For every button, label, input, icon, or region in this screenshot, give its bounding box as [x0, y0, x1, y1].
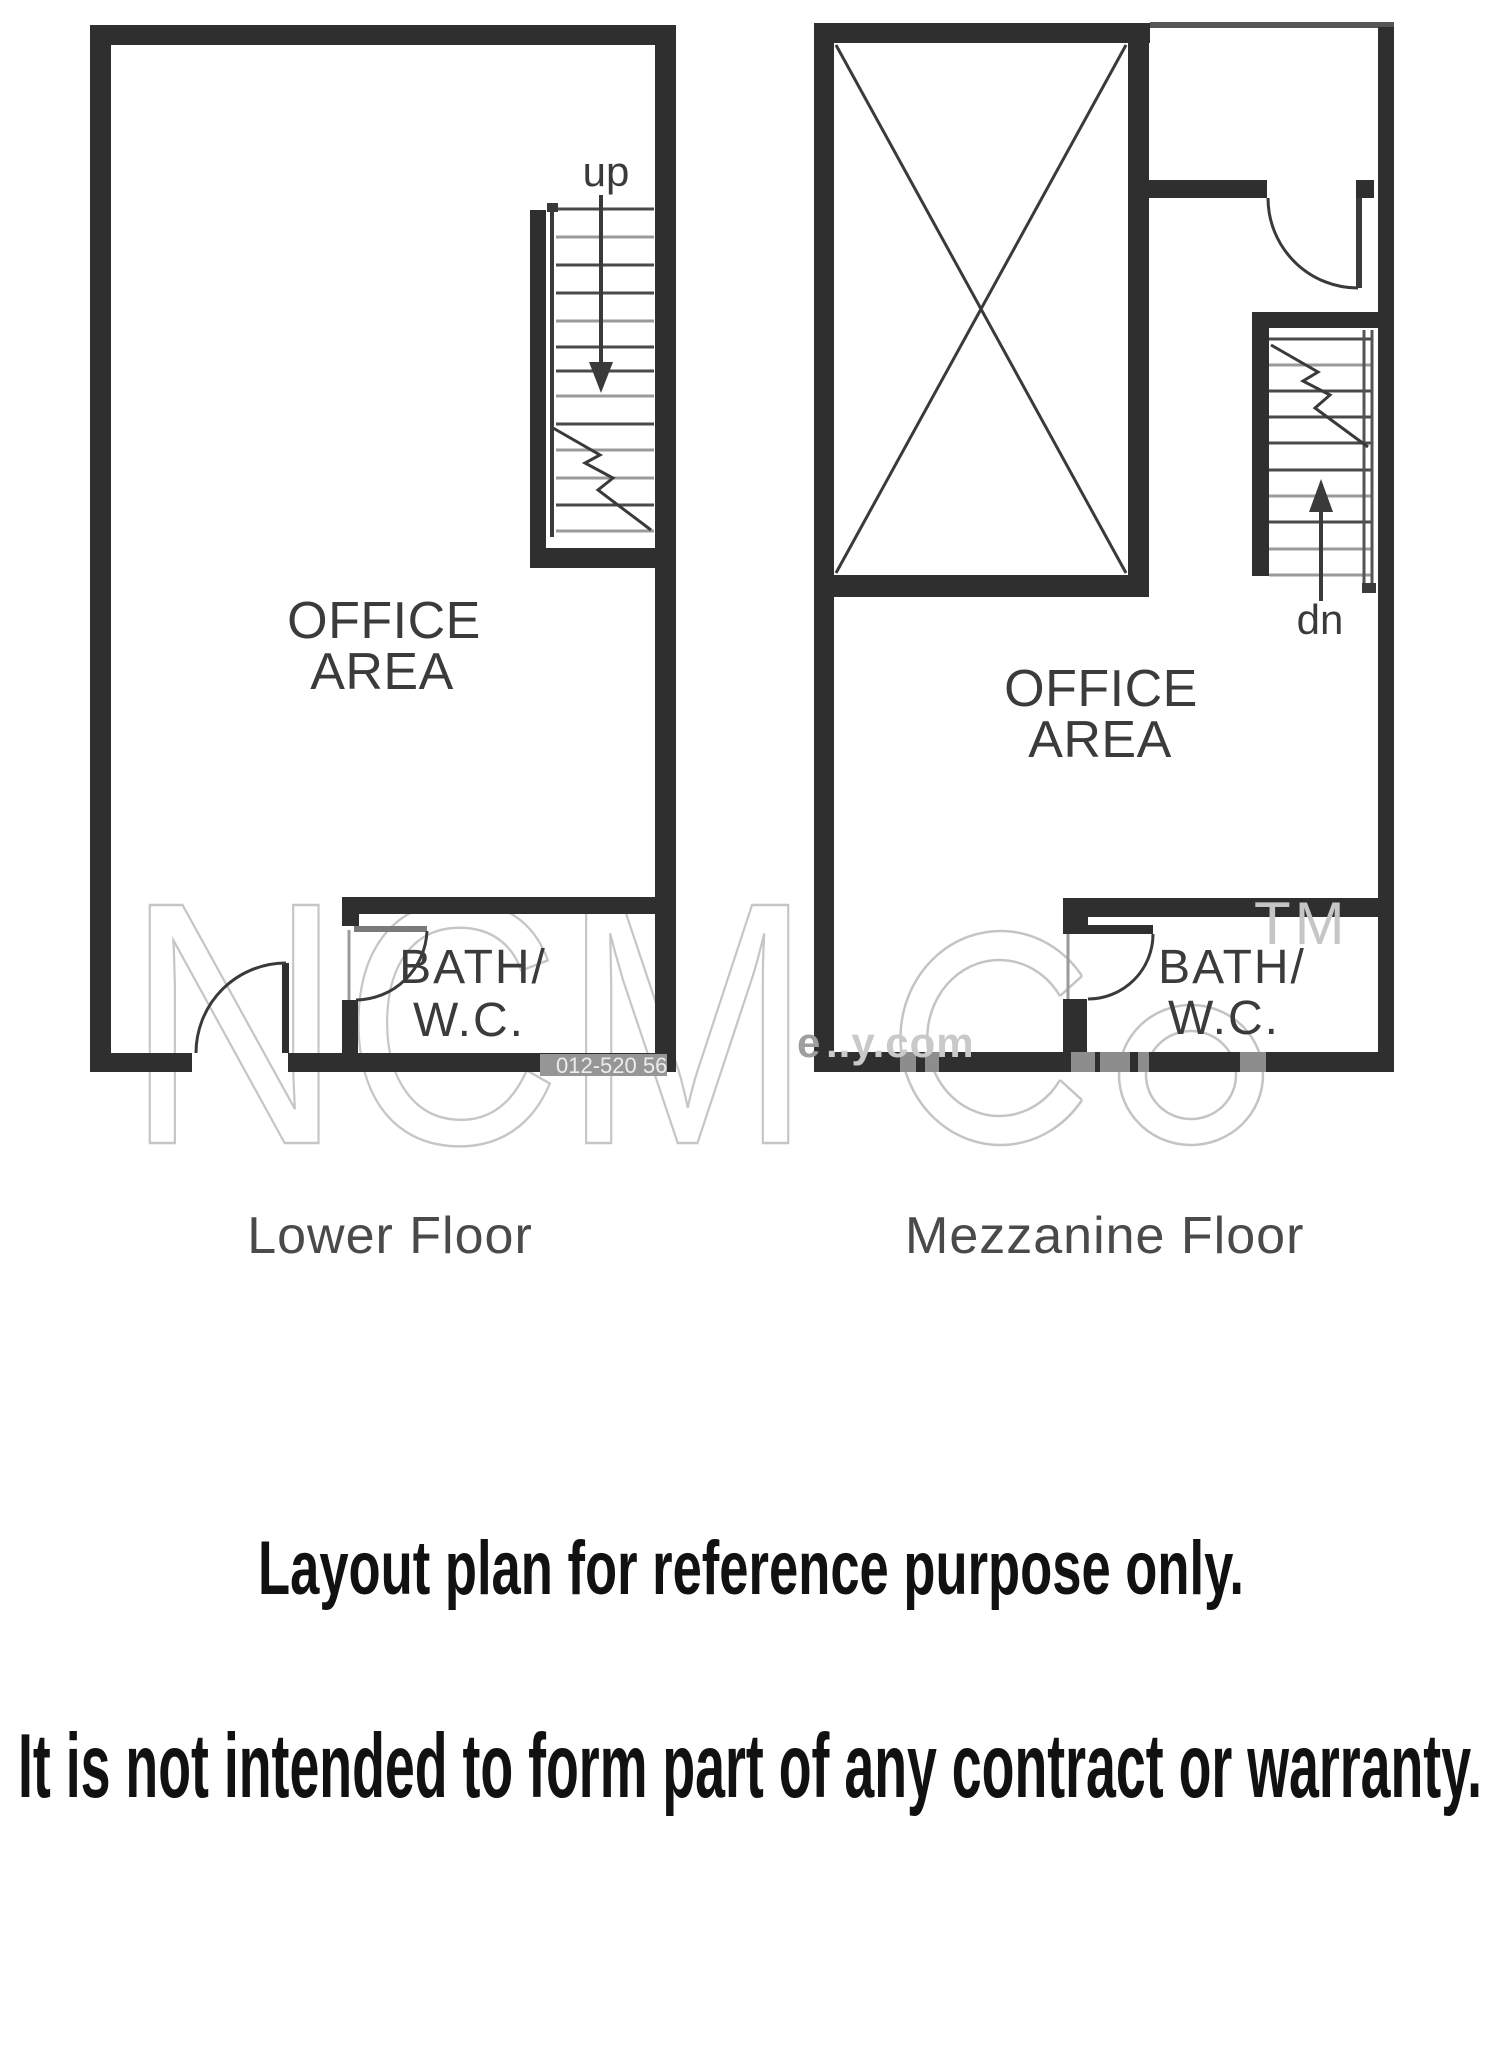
svg-text:Layout plan for reference purp: Layout plan for reference purpose only.	[258, 1526, 1244, 1611]
svg-text:OFFICE: OFFICE	[287, 592, 481, 650]
svg-text:up: up	[583, 148, 630, 195]
svg-text:Lower Floor: Lower Floor	[247, 1207, 533, 1265]
svg-text:AREA: AREA	[1028, 711, 1172, 769]
svg-text:e: e	[797, 1019, 820, 1066]
svg-text:W.C.: W.C.	[413, 994, 525, 1047]
svg-text:dn: dn	[1297, 596, 1344, 643]
svg-text:..y.com: ..y.com	[826, 1019, 975, 1066]
svg-text:Mezzanine Floor: Mezzanine Floor	[905, 1207, 1304, 1265]
svg-text:It is not intended to form par: It is not intended to form part of any c…	[18, 1716, 1482, 1817]
svg-text:TM: TM	[1254, 890, 1349, 957]
svg-text:W.C.: W.C.	[1168, 992, 1280, 1045]
svg-text:AREA: AREA	[310, 643, 454, 701]
svg-text:012-520 56: 012-520 56	[556, 1053, 667, 1078]
svg-text:BATH/: BATH/	[399, 941, 547, 994]
svg-text:OFFICE: OFFICE	[1004, 660, 1198, 718]
